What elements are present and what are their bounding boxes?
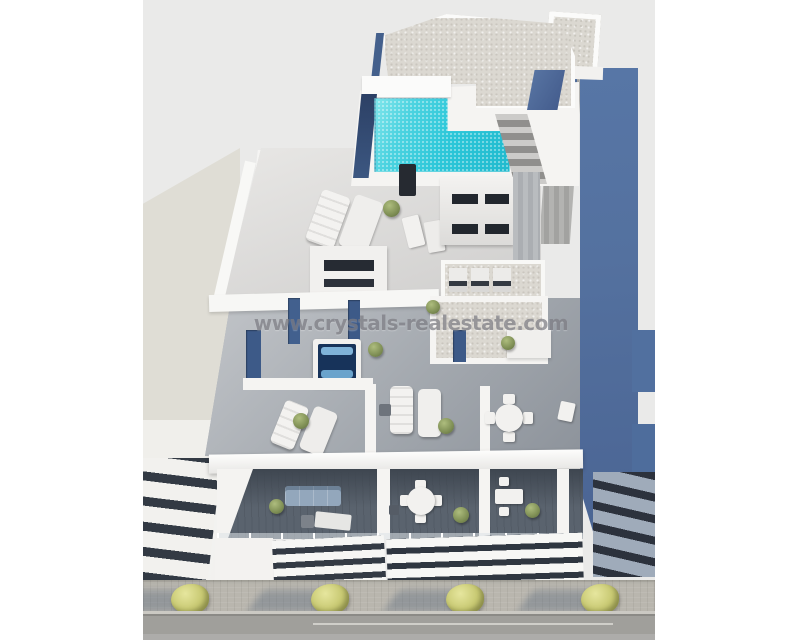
- pool-beam: [362, 76, 451, 97]
- road: [143, 614, 655, 640]
- street-tree: [171, 584, 209, 614]
- pool-shower-post: [399, 164, 416, 196]
- coffee-table: [301, 515, 314, 528]
- potted-plant: [293, 413, 309, 429]
- street-tree: [581, 584, 619, 614]
- terrace-wall: [243, 378, 373, 390]
- street-tree: [311, 584, 349, 614]
- jacuzzi-seat: [321, 347, 353, 355]
- property-render-photo: www.crystals-realestate.com: [143, 0, 655, 640]
- side-table: [379, 404, 391, 416]
- dining-chair: [485, 412, 495, 424]
- dining-table: [495, 404, 523, 432]
- balcony-pier: [479, 469, 490, 539]
- lane-line: [313, 623, 613, 625]
- skylight-window: [324, 260, 374, 271]
- skylight-window: [485, 194, 509, 204]
- ac-unit: [493, 268, 511, 292]
- potted-plant: [525, 503, 540, 518]
- balcony-pier: [557, 469, 569, 539]
- side-table: [389, 505, 399, 515]
- watermark: www.crystals-realestate.com: [254, 311, 569, 335]
- dining-chair: [523, 412, 533, 424]
- chaise: [314, 511, 351, 531]
- skylight-window: [324, 279, 374, 287]
- potted-plant: [383, 200, 400, 217]
- balcony-pier: [377, 469, 390, 539]
- sofa: [285, 486, 341, 506]
- dining-table: [407, 487, 435, 515]
- roof-edge-navy-wall: [371, 33, 384, 81]
- neighbor-building-right-louvers: [593, 472, 655, 577]
- balcony-dining-set: [401, 481, 441, 523]
- balcony-left-wall: [217, 469, 253, 539]
- ac-unit: [449, 268, 467, 292]
- skylight-window: [452, 224, 478, 234]
- terrace-divider: [365, 384, 376, 458]
- skylight-window: [452, 194, 478, 204]
- facade-wall: [215, 538, 273, 584]
- balcony-chair: [499, 477, 509, 486]
- potted-plant: [269, 499, 284, 514]
- real-estate-listing-photo: www.crystals-realestate.com: [0, 0, 800, 640]
- potted-plant: [438, 418, 454, 434]
- ac-unit: [471, 268, 489, 292]
- jacuzzi-water: [318, 344, 356, 381]
- neighbor-balcony-block-upper: [632, 330, 655, 392]
- potted-plant: [368, 342, 383, 357]
- roof-walkway-planks: [513, 172, 540, 264]
- street-tree: [446, 584, 484, 614]
- jacuzzi-seat: [321, 370, 353, 378]
- balcony-strip: [217, 469, 583, 539]
- ac-unit-gravel-strip: [441, 260, 545, 300]
- dining-set: [487, 396, 531, 440]
- dining-chair: [503, 432, 515, 442]
- dining-chair: [415, 514, 426, 523]
- potted-plant: [501, 336, 515, 350]
- balcony-chair: [499, 507, 509, 516]
- sun-lounger: [390, 386, 413, 434]
- balcony-table: [495, 489, 523, 504]
- gutter-strip: [143, 634, 655, 640]
- skylight-window: [485, 224, 509, 234]
- potted-plant: [453, 507, 469, 523]
- dining-chair: [503, 394, 515, 404]
- stair-bulkhead: [440, 177, 513, 245]
- sun-lounger: [418, 389, 441, 437]
